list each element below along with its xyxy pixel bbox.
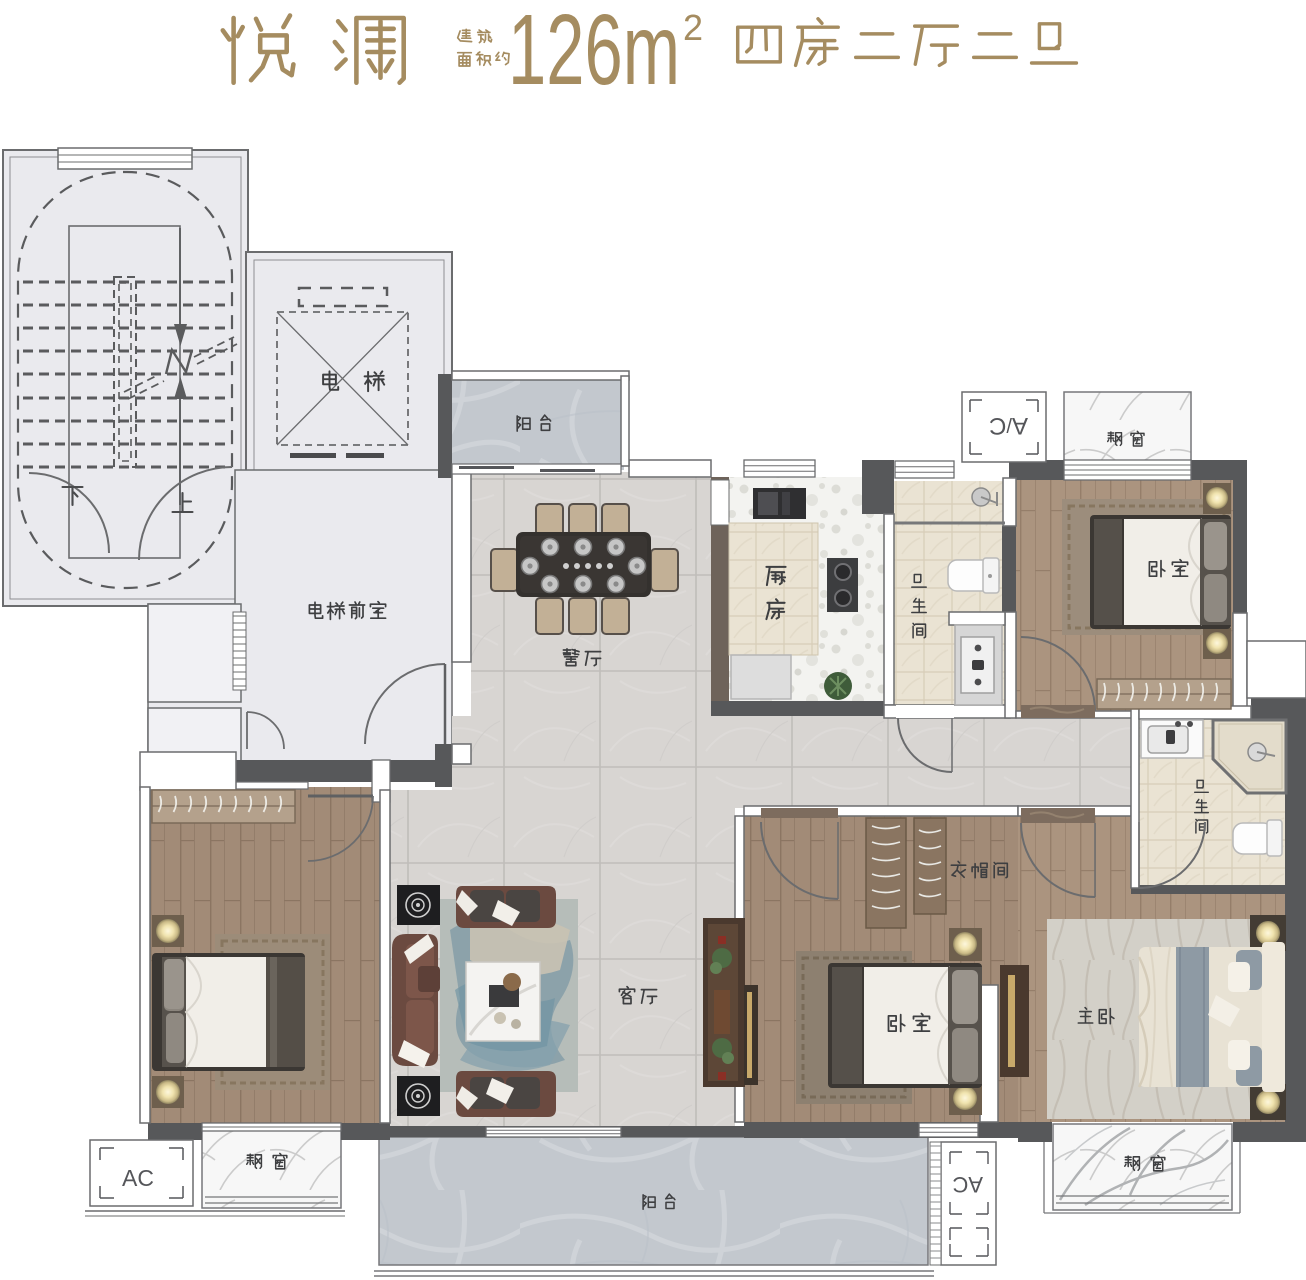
svg-text:2: 2 bbox=[683, 7, 703, 48]
svg-text:A/C: A/C bbox=[989, 412, 1028, 439]
svg-text:126m: 126m bbox=[508, 0, 680, 106]
svg-text:AC: AC bbox=[952, 1172, 983, 1197]
svg-text:AC: AC bbox=[122, 1165, 154, 1191]
